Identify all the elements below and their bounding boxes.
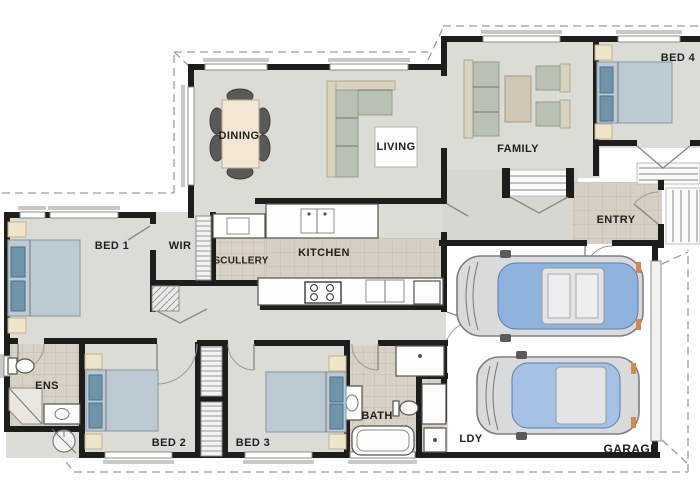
kitchen-bench [258,278,443,305]
scullery-tiles [216,240,266,282]
ens-toilet [16,359,34,373]
living-label-plate [375,127,417,167]
car-1 [457,250,643,342]
bath-cabinet [422,384,446,424]
garage-door [651,261,661,441]
floor-plan: DINING LIVING FAMILY BED 4 ENTRY BED 1 W… [0,0,700,500]
bath-toilet-tank [393,401,399,416]
bath-shower [396,346,444,376]
ens-vanity [44,404,80,424]
car-2 [477,351,639,440]
porch-steps-bed4 [637,146,700,184]
scullery-bench [213,214,265,238]
fridge [414,281,440,304]
family-coffee-table [505,76,531,122]
family-sofa [464,60,499,138]
bath-toilet [400,401,418,415]
kitchen-island [266,204,378,238]
cooktop [305,282,341,303]
floor-plan-drawing [0,0,700,500]
porch-deck-entry [666,188,700,244]
entry-tiles [572,182,662,244]
